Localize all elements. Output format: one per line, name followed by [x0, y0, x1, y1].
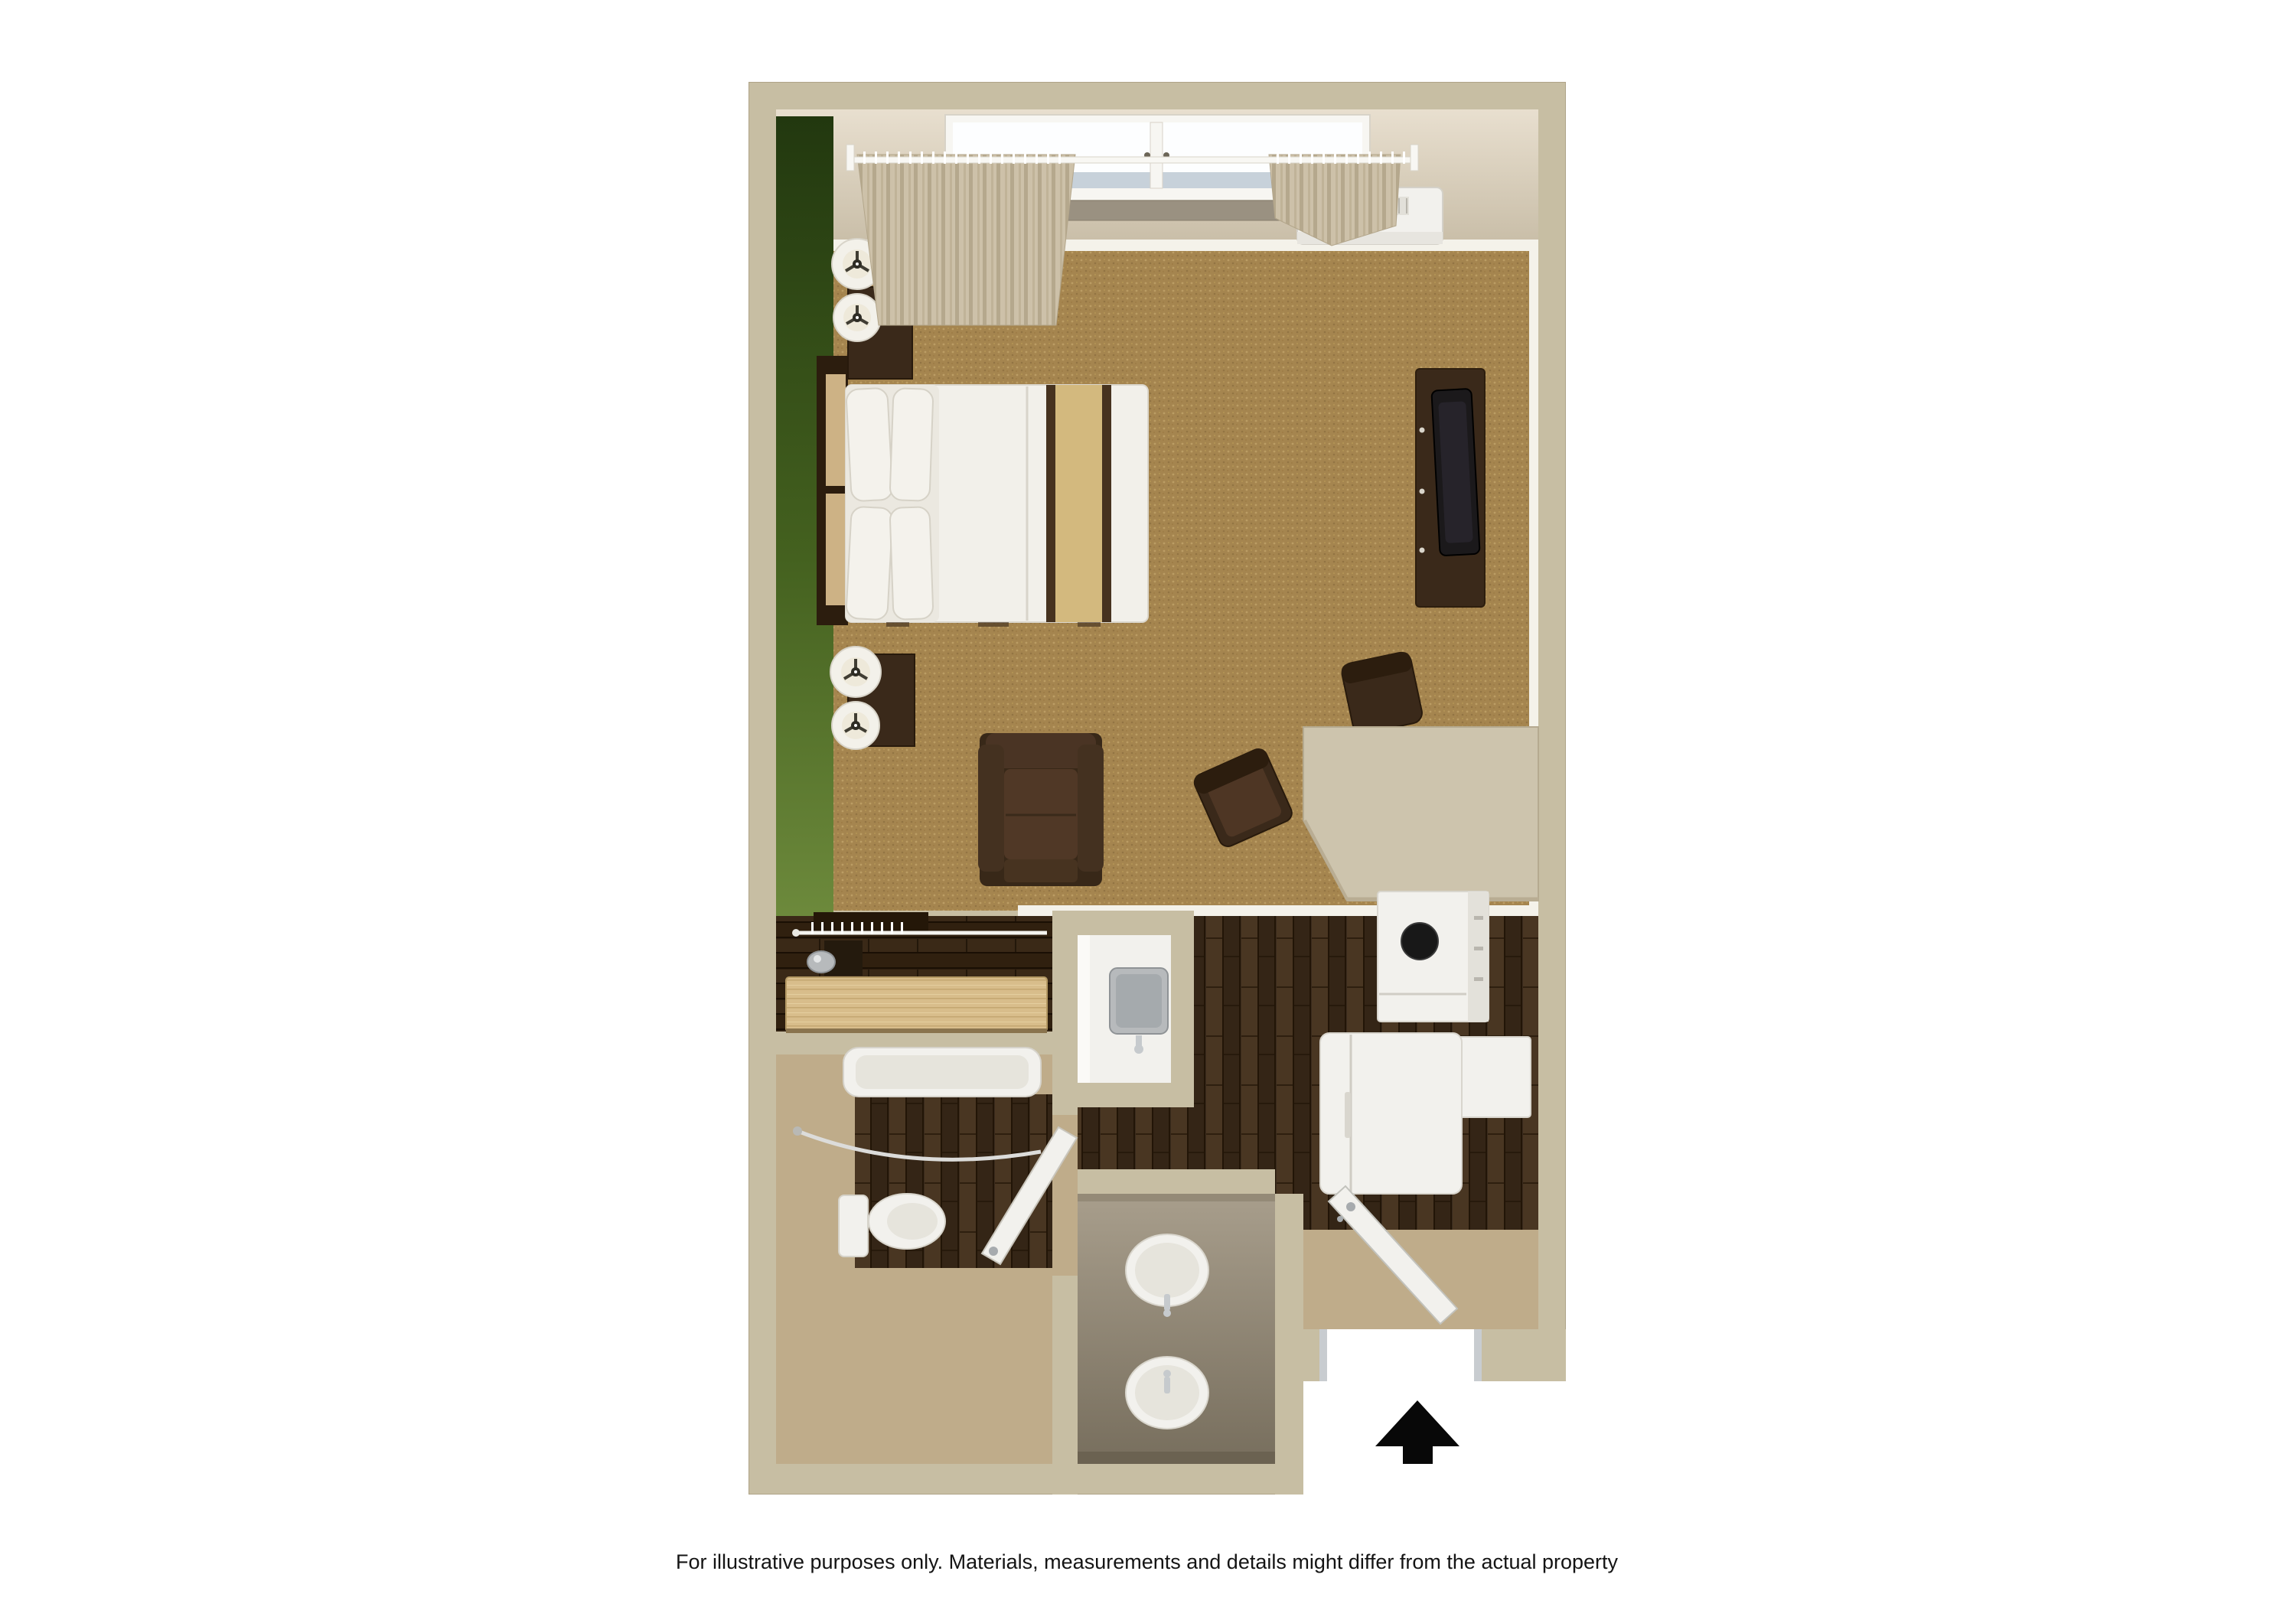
bed-foot-shadow — [886, 622, 909, 627]
desk-chair — [1340, 650, 1424, 735]
refrigerator — [1320, 1033, 1462, 1194]
entry-door-deadbolt — [1337, 1216, 1343, 1222]
rod-end-cap — [792, 929, 800, 937]
bed-foot-shadow — [978, 622, 1009, 627]
pillow — [846, 507, 893, 621]
pillow — [889, 507, 933, 620]
vanity-right-wall — [1275, 1194, 1303, 1495]
armchair — [978, 733, 1104, 886]
runner-band — [1102, 385, 1111, 622]
curtain-rod — [850, 157, 1418, 163]
table-lamp-icon — [832, 702, 879, 749]
curtain-left — [857, 155, 1075, 325]
mid-wall-lower — [1052, 1276, 1078, 1495]
counter-desk — [1303, 727, 1538, 901]
headboard-inset — [826, 494, 846, 605]
drawer-handle — [1420, 489, 1425, 494]
headboard-inset — [826, 374, 846, 486]
iron — [807, 951, 835, 973]
tv — [1431, 389, 1479, 556]
stove-control-panel — [1468, 892, 1489, 1022]
fridge-handle — [1345, 1092, 1351, 1138]
counter-top — [1303, 727, 1538, 901]
entry-threshold — [1324, 1329, 1477, 1381]
door-jamb — [1474, 1329, 1482, 1381]
sink-niche-bottom — [1052, 1083, 1194, 1107]
vanity — [1078, 1194, 1275, 1464]
floor-plan — [748, 82, 1566, 1495]
luggage-bench — [786, 977, 1047, 1032]
vanity-top-wall — [1078, 1169, 1275, 1194]
kitchen-sink-basin — [1116, 974, 1162, 1028]
toilet-seat — [887, 1203, 938, 1240]
runner-band — [1046, 385, 1055, 622]
vanity-rim — [1078, 1452, 1275, 1464]
tv-console — [1416, 369, 1485, 607]
bathtub-basin — [856, 1055, 1029, 1089]
pillow — [889, 388, 933, 501]
window-mullion — [1150, 122, 1163, 188]
vanity-sink-1-basin — [1135, 1243, 1199, 1298]
stove-knob — [1474, 977, 1483, 981]
armchair-front — [1004, 859, 1078, 882]
kitchen-faucet — [1136, 1035, 1142, 1046]
vanity-faucet-knob — [1163, 1309, 1171, 1317]
iron-highlight — [814, 955, 821, 963]
stove-knob — [1474, 916, 1483, 920]
sink-niche-top — [1052, 911, 1194, 935]
pillow — [846, 388, 893, 502]
bed-runner — [1055, 385, 1102, 622]
table-lamp-icon — [833, 294, 881, 341]
hall-floor — [1052, 1107, 1275, 1172]
shower-rod-mount — [793, 1126, 802, 1136]
stove-knob — [1474, 947, 1483, 950]
bed-foot-shadow — [1078, 622, 1101, 627]
vanity-faucet-knob — [1163, 1370, 1171, 1377]
bathroom-door-knob — [989, 1247, 998, 1256]
page: For illustrative purposes only. Material… — [0, 0, 2296, 1607]
sink-counter-face — [1078, 935, 1090, 1083]
entry-door-knob — [1346, 1202, 1355, 1211]
table-lamp-icon — [830, 647, 881, 697]
vanity-faucet — [1164, 1294, 1170, 1311]
sink-niche-right — [1171, 935, 1194, 1083]
toilet-tank — [839, 1195, 868, 1257]
armchair-arm — [978, 745, 1004, 872]
kitchen-sink-counter — [1078, 935, 1171, 1083]
armchair-arm — [1078, 745, 1104, 872]
drawer-handle — [1420, 428, 1425, 433]
vanity-backsplash — [1078, 1194, 1275, 1201]
kitchen-faucet-knob — [1134, 1045, 1143, 1054]
drawer-handle — [1420, 548, 1425, 553]
fridge-body — [1320, 1033, 1462, 1194]
door-jamb — [1319, 1329, 1327, 1381]
bed — [817, 356, 1148, 627]
vanity-faucet — [1164, 1377, 1170, 1393]
bench-shadow — [786, 1028, 1047, 1033]
rod-bracket — [846, 145, 854, 171]
stove — [1378, 892, 1489, 1022]
caption-text: For illustrative purposes only. Material… — [676, 1550, 1618, 1574]
rod-bracket — [1411, 145, 1418, 171]
stove-burner — [1401, 923, 1438, 960]
